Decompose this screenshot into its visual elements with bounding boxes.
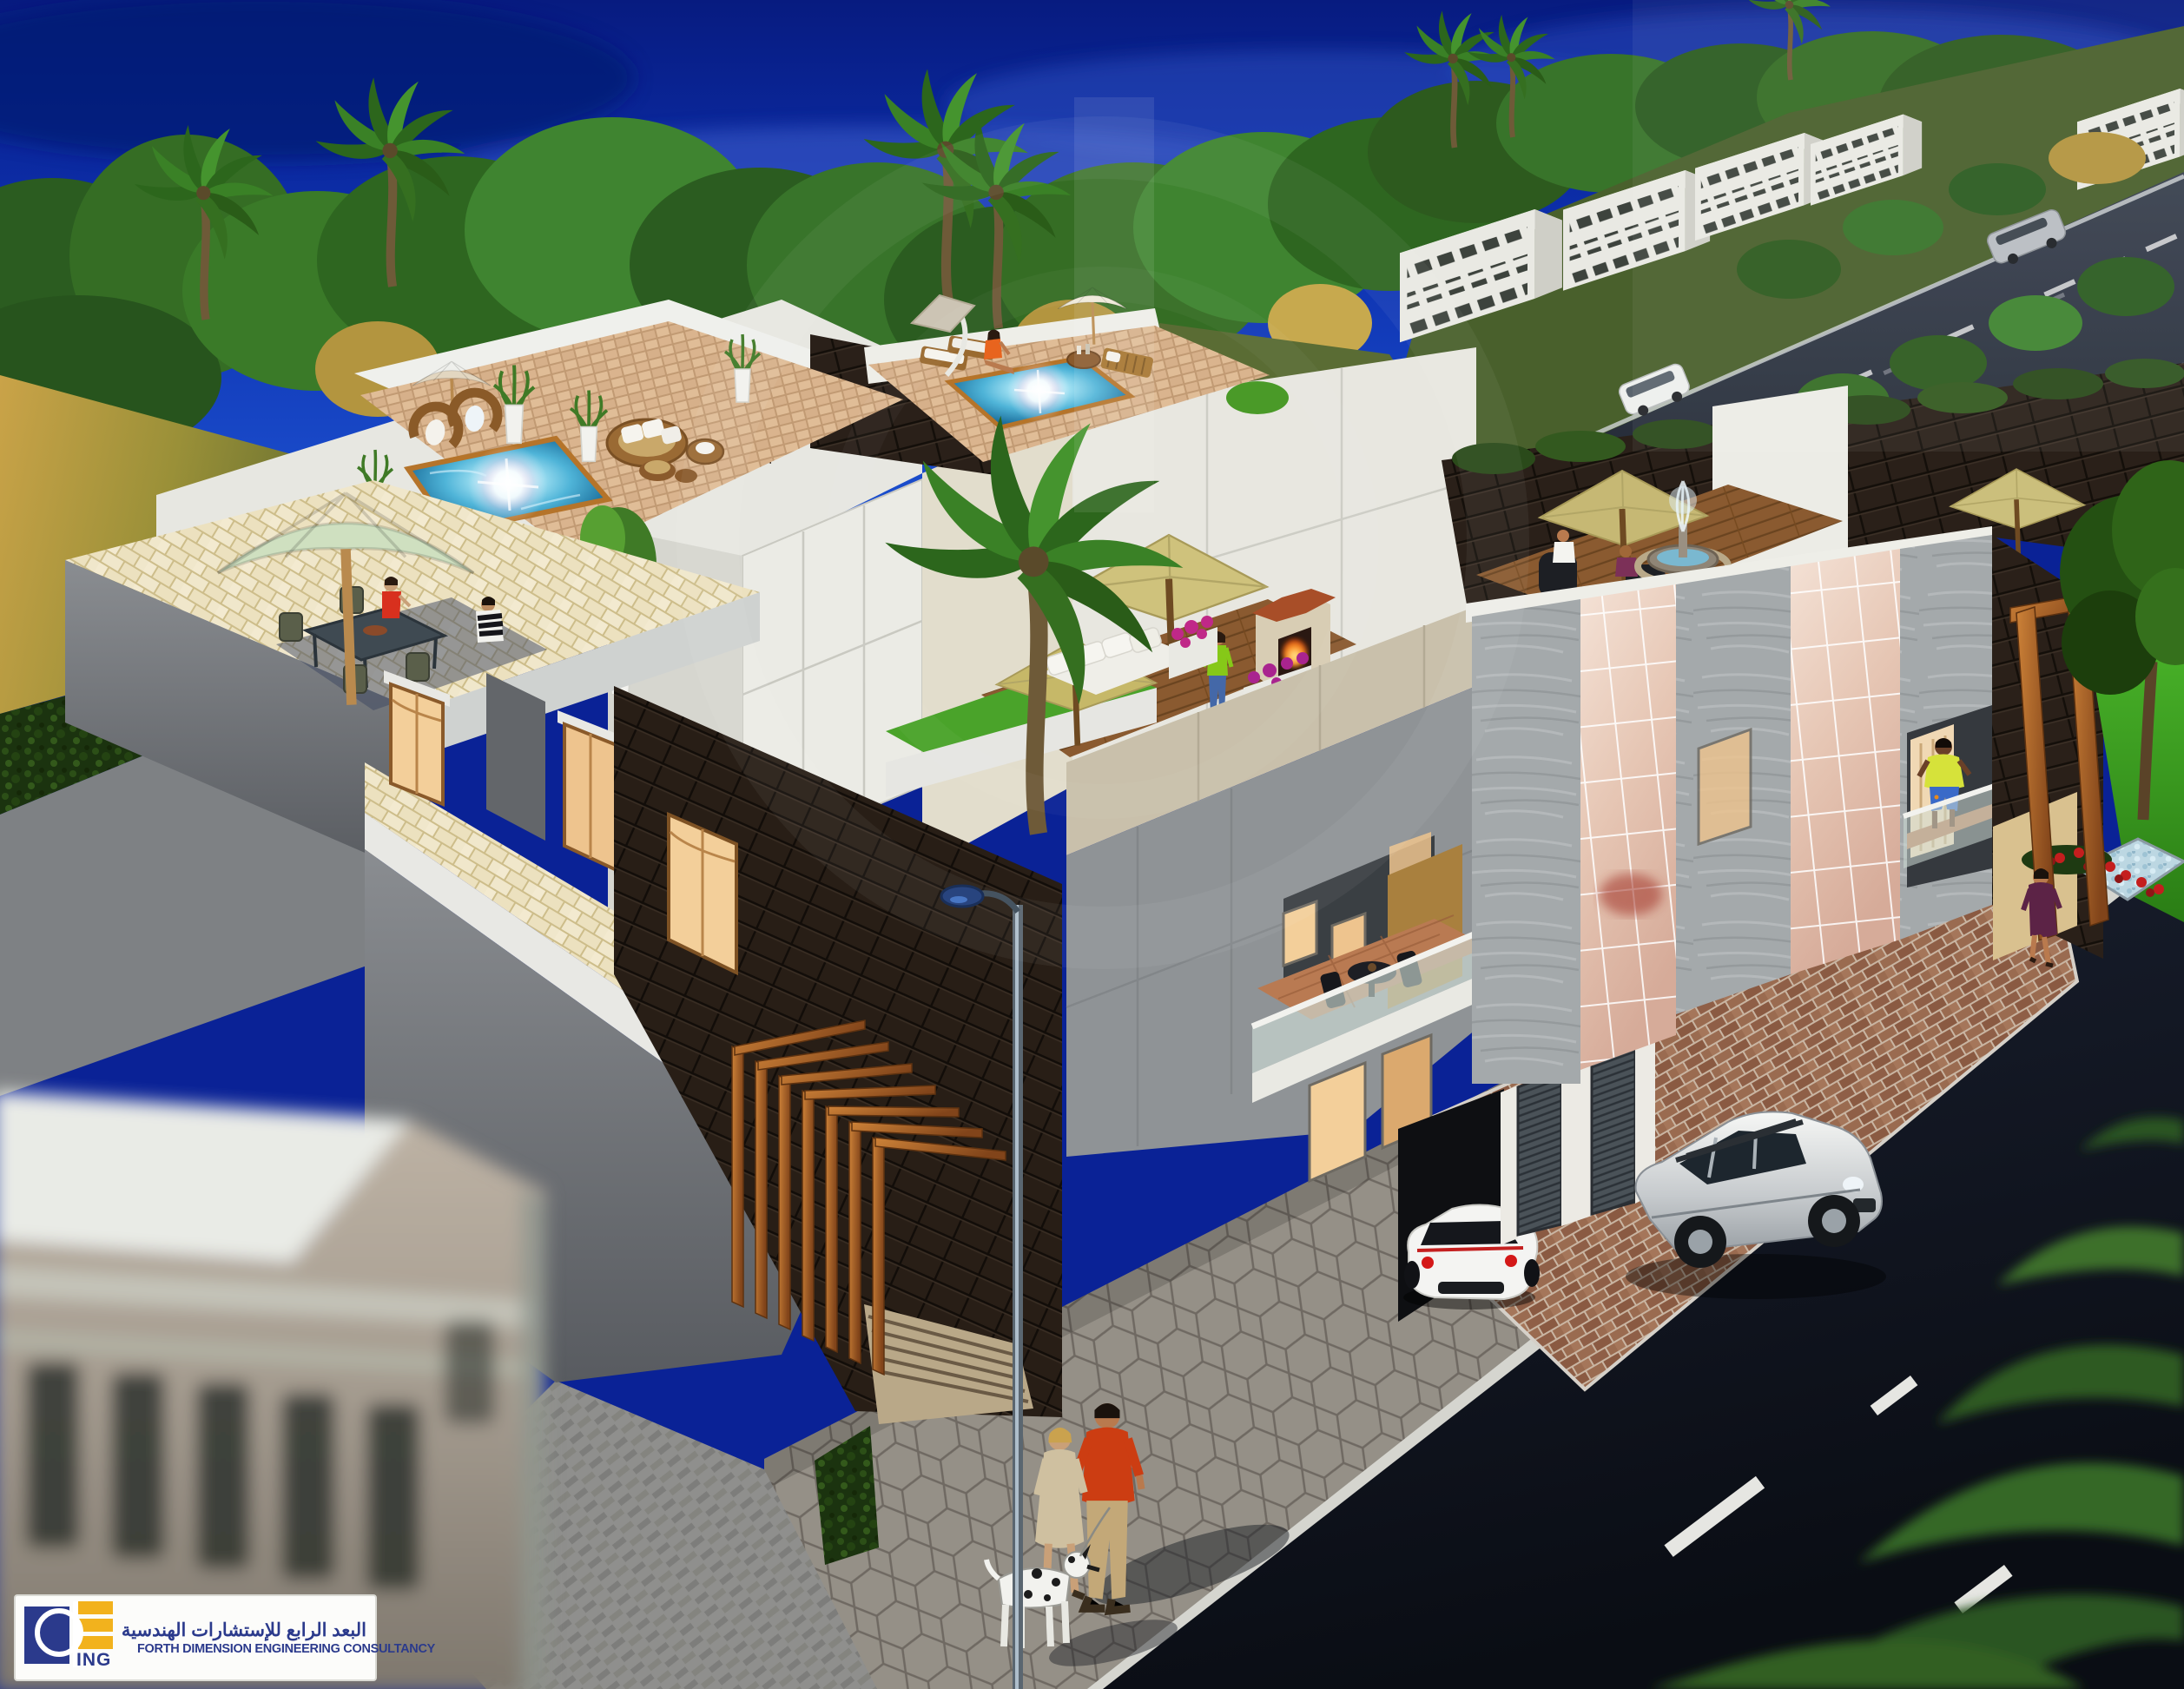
lit-window	[558, 710, 624, 870]
company-name-english: FORTH DIMENSION ENGINEERING CONSULTANCY	[137, 1642, 366, 1656]
logo-gold-bar	[78, 1619, 113, 1632]
company-name-arabic: البعد الرابع للإستشارات الهندسية	[137, 1620, 366, 1642]
logo-ing-text: ING	[76, 1650, 111, 1671]
rendering-canvas	[0, 0, 2184, 1689]
logo-mark: ING	[24, 1600, 127, 1676]
logo-text-block: البعد الرابع للإستشارات الهندسية FORTH D…	[137, 1620, 366, 1656]
company-logo-card: ING البعد الرابع للإستشارات الهندسية FOR…	[14, 1594, 377, 1681]
balcony-with-man	[1904, 705, 1997, 887]
logo-gold-bar	[78, 1636, 113, 1649]
logo-gold-bar	[78, 1601, 113, 1614]
architectural-rendering-scene: ING البعد الرابع للإستشارات الهندسية FOR…	[0, 0, 2184, 1689]
